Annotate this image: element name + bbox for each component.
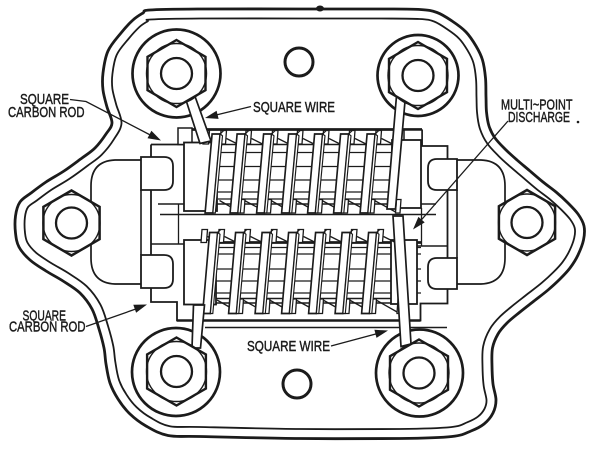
svg-text:CARBON ROD: CARBON ROD: [9, 320, 86, 336]
svg-text:CARBON ROD: CARBON ROD: [8, 105, 85, 121]
svg-text:SQUARE WIRE: SQUARE WIRE: [253, 100, 335, 116]
svg-text:SQUARE WIRE: SQUARE WIRE: [247, 339, 330, 355]
svg-text:DISCHARGE: DISCHARGE: [508, 110, 570, 126]
